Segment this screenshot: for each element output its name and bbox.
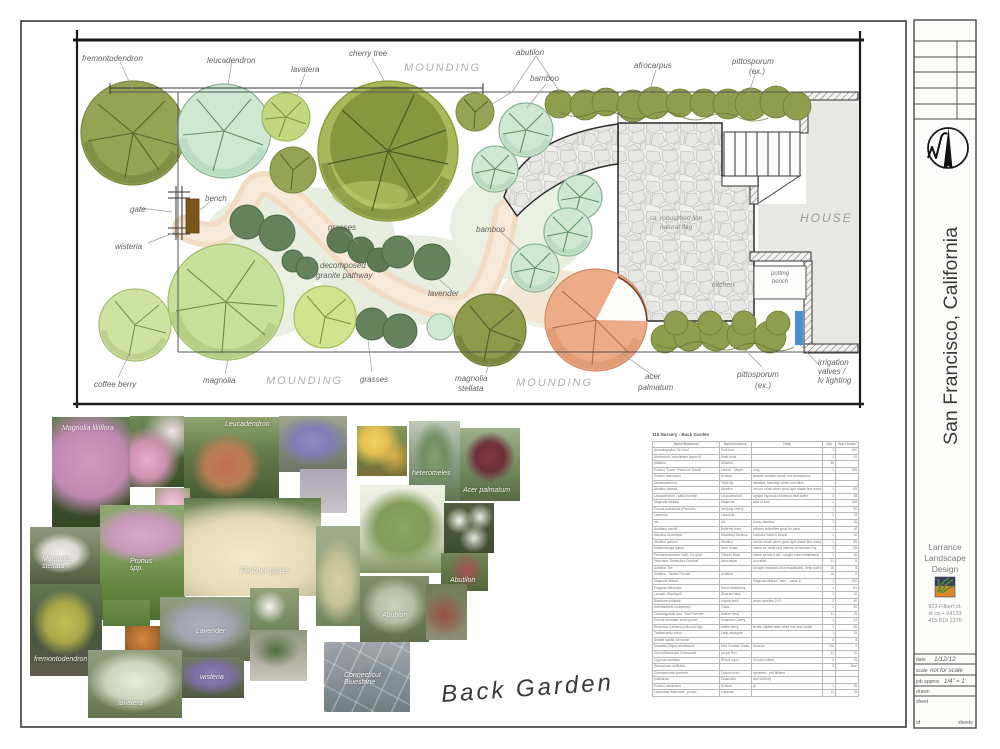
svg-text:granite pathway: granite pathway [316, 271, 373, 280]
svg-text:not for scale: not for scale [930, 668, 963, 674]
svg-text:San Francisco, California: San Francisco, California [940, 227, 962, 445]
svg-text:decomposed: decomposed [320, 261, 366, 270]
svg-text:1/4" = 1': 1/4" = 1' [944, 679, 967, 685]
svg-text:MOUNDING: MOUNDING [404, 62, 481, 74]
svg-text:Landscape: Landscape [924, 553, 966, 563]
svg-text:potting: potting [770, 271, 790, 277]
svg-text:afrocarpus: afrocarpus [634, 61, 672, 70]
svg-text:923 Filbert st.: 923 Filbert st. [928, 604, 962, 610]
svg-text:Larrance: Larrance [928, 542, 962, 552]
svg-text:coffee berry: coffee berry [94, 380, 137, 389]
svg-text:irrigation: irrigation [818, 358, 849, 367]
svg-text:of: of [916, 720, 921, 726]
svg-text:lavender: lavender [428, 289, 459, 298]
svg-text:sf ca + 94133: sf ca + 94133 [928, 611, 961, 617]
svg-text:valves /: valves / [818, 367, 846, 376]
svg-text:abutilon: abutilon [516, 48, 545, 57]
svg-text:drawn: drawn [916, 689, 930, 695]
svg-text:magnolia: magnolia [455, 374, 488, 383]
svg-text:bench: bench [205, 194, 227, 203]
svg-text:leucadendron: leucadendron [207, 56, 256, 65]
svg-text:gate: gate [130, 205, 146, 214]
svg-text:lavatera: lavatera [291, 65, 320, 74]
svg-text:sheets: sheets [958, 720, 973, 726]
svg-text:bamboo: bamboo [530, 74, 559, 83]
svg-text:natural flag: natural flag [660, 224, 693, 231]
svg-text:scale: scale [916, 668, 928, 674]
svg-text:grasses: grasses [328, 223, 356, 232]
svg-text:lv lighting: lv lighting [818, 376, 852, 385]
svg-text:cherry tree: cherry tree [349, 49, 388, 58]
svg-text:pittosporum: pittosporum [731, 57, 774, 66]
svg-text:grasses: grasses [360, 375, 388, 384]
svg-text:415 819 2370: 415 819 2370 [928, 618, 962, 624]
svg-text:ca. robust/tied lion: ca. robust/tied lion [650, 215, 703, 222]
svg-text:pittosporum: pittosporum [736, 370, 779, 379]
svg-text:magnolia: magnolia [203, 376, 236, 385]
svg-text:HOUSE: HOUSE [800, 211, 853, 225]
svg-text:stellata: stellata [458, 384, 484, 393]
svg-text:sheet: sheet [916, 699, 929, 705]
svg-text:(ex.): (ex.) [749, 67, 765, 76]
svg-text:MOUNDING: MOUNDING [516, 377, 593, 389]
svg-text:date: date [916, 657, 926, 663]
svg-text:bench: bench [772, 279, 789, 285]
svg-text:job approx: job approx [915, 679, 940, 685]
svg-text:(ex.): (ex.) [755, 381, 771, 390]
svg-text:bamboo: bamboo [476, 225, 505, 234]
svg-text:palmatum: palmatum [637, 383, 673, 392]
svg-text:MOUNDING: MOUNDING [266, 375, 343, 387]
svg-text:Design: Design [932, 564, 959, 574]
svg-text:kitchen: kitchen [712, 282, 734, 289]
svg-text:wisteria: wisteria [115, 242, 143, 251]
svg-text:fremontodendron: fremontodendron [82, 54, 143, 63]
svg-text:acer: acer [645, 372, 661, 381]
svg-text:1/12/12: 1/12/12 [934, 656, 956, 663]
